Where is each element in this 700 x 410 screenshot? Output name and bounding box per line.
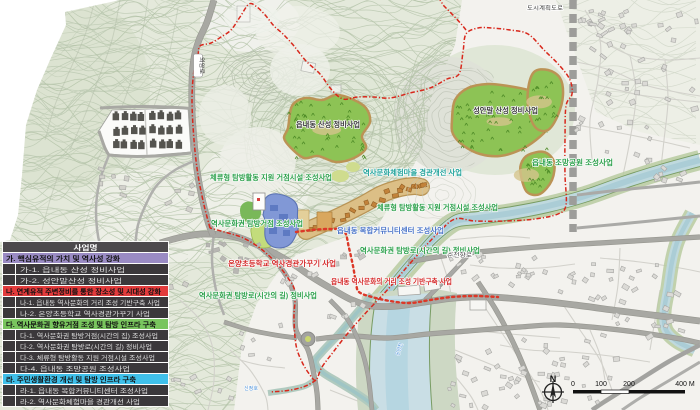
svg-text:역사문화권 탐방로(시간의 길) 정비사업: 역사문화권 탐방로(시간의 길) 정비사업 (199, 290, 317, 300)
svg-text:역사문화권 탐방거점 조성사업: 역사문화권 탐방거점 조성사업 (211, 218, 303, 228)
svg-text:N: N (550, 374, 557, 384)
svg-text:100: 100 (595, 381, 607, 388)
svg-text:가. 핵심유적의 가치 및 역사성 강화: 가. 핵심유적의 가치 및 역사성 강화 (6, 254, 121, 263)
svg-text:읍내동 역사문화의 거리 조성 기반구축 사업: 읍내동 역사문화의 거리 조성 기반구축 사업 (331, 276, 452, 286)
svg-text:나-1. 읍내동 역사문화의 거리 조성 기반구축 사업: 나-1. 읍내동 역사문화의 거리 조성 기반구축 사업 (20, 298, 160, 307)
svg-text:사업명: 사업명 (74, 243, 98, 252)
svg-text:다-4. 읍내동 조망공원 조성사업: 다-4. 읍내동 조망공원 조성사업 (20, 364, 130, 373)
svg-text:200: 200 (623, 381, 635, 388)
svg-text:역사문화체험마을 경관개선 사업: 역사문화체험마을 경관개선 사업 (363, 167, 462, 177)
svg-text:다-1. 역사문화권 탐방거점(시간의 집) 조성사업: 다-1. 역사문화권 탐방거점(시간의 집) 조성사업 (20, 331, 158, 340)
svg-text:읍내동 복합커뮤니티센터 조성사업: 읍내동 복합커뮤니티센터 조성사업 (337, 225, 444, 235)
svg-text:나. 연계유적 주변정비를 통한 장소성 및 시대성 강화: 나. 연계유적 주변정비를 통한 장소성 및 시대성 강화 (6, 287, 162, 296)
svg-text:라. 주민생활환경 개선 및 탐방 인프라 구축: 라. 주민생활환경 개선 및 탐방 인프라 구축 (6, 375, 137, 384)
svg-text:외암로: 외암로 (198, 57, 206, 74)
svg-text:나-2. 온양초등학교 역사경관가꾸기 사업: 나-2. 온양초등학교 역사경관가꾸기 사업 (20, 309, 150, 318)
svg-text:읍내동 조망공원 조성사업: 읍내동 조망공원 조성사업 (532, 157, 613, 167)
svg-text:읍내동 산성 정비사업: 읍내동 산성 정비사업 (296, 119, 360, 129)
svg-text:신정호: 신정호 (244, 385, 258, 392)
svg-text:라-1. 읍내동 복합커뮤니티센터 조성사업: 라-1. 읍내동 복합커뮤니티센터 조성사업 (20, 386, 148, 395)
svg-text:가-2. 성안말산성 정비사업: 가-2. 성안말산성 정비사업 (20, 276, 122, 285)
svg-text:도시계획도로: 도시계획도로 (527, 4, 563, 12)
svg-text:체류형 탐방활동 지원 거점시설 조성사업: 체류형 탐방활동 지원 거점시설 조성사업 (377, 202, 498, 212)
svg-text:다. 역사문화권 향유거점 조성 및 탐방 인프라 구축: 다. 역사문화권 향유거점 조성 및 탐방 인프라 구축 (6, 320, 157, 329)
svg-text:다-2. 역사문화권 탐방로(시간의 길) 정비사업: 다-2. 역사문화권 탐방로(시간의 길) 정비사업 (20, 342, 152, 351)
svg-text:다-3. 체류형 탐방활동 지원 거점시설 조성사업: 다-3. 체류형 탐방활동 지원 거점시설 조성사업 (20, 353, 155, 362)
svg-text:온양초등학교 역사경관가꾸기 사업: 온양초등학교 역사경관가꾸기 사업 (228, 258, 336, 268)
svg-text:가-1. 읍내동 산성 정비사업: 가-1. 읍내동 산성 정비사업 (20, 265, 125, 274)
svg-text:400 M: 400 M (675, 381, 695, 388)
svg-text:라-2. 역사문화체험마을 경관개선 사업: 라-2. 역사문화체험마을 경관개선 사업 (20, 397, 140, 406)
svg-text:0: 0 (571, 381, 575, 388)
svg-text:체류형 탐방활동 지원 거점시설 조성사업: 체류형 탐방활동 지원 거점시설 조성사업 (210, 172, 332, 182)
svg-text:성안말 산성 정비사업: 성안말 산성 정비사업 (473, 105, 538, 115)
svg-text:순천향로: 순천향로 (447, 251, 472, 259)
